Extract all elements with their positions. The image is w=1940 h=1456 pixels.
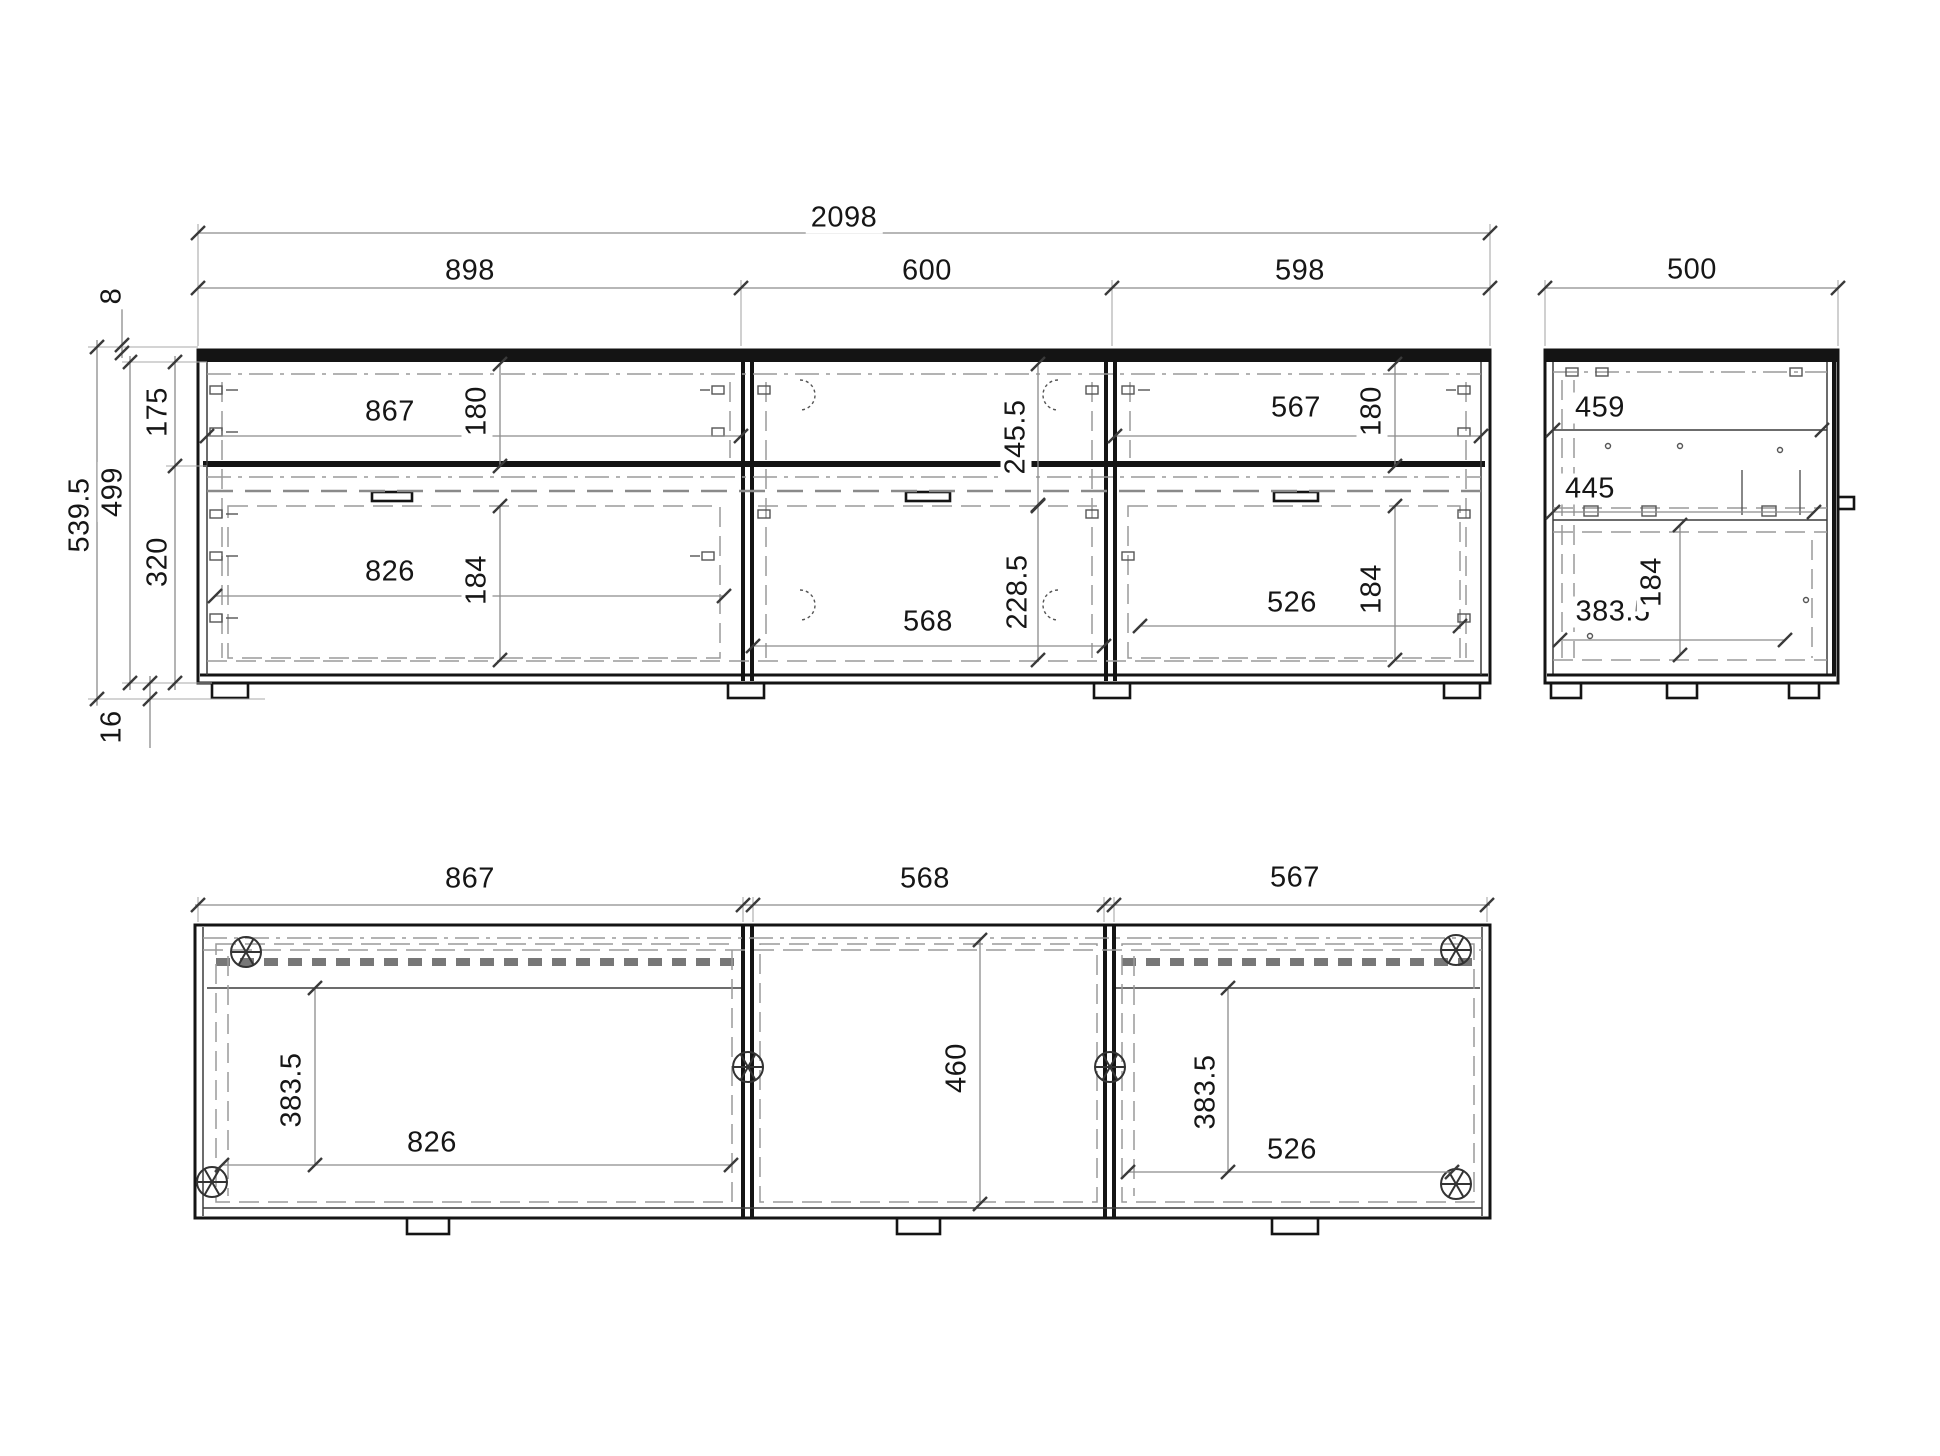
dim-front-mid-width: 600 [897, 256, 957, 287]
dim-plan-mid-width: 568 [895, 864, 955, 895]
dim-side-shelf-depth: 445 [1560, 474, 1620, 505]
dim-front-mid-door-width: 568 [898, 607, 958, 638]
dim-front-right-width: 598 [1270, 256, 1330, 287]
dim-front-left-door-height: 184 [462, 550, 493, 610]
dim-front-right-door-width: 526 [1262, 588, 1322, 619]
dim-front-left-drawer-height: 180 [462, 381, 493, 441]
dim-front-plinth-height: 16 [97, 705, 128, 748]
front-view-dimensions [88, 224, 1497, 748]
dim-plan-left-depth: 383.5 [277, 1047, 308, 1132]
dim-plan-left-door-width: 826 [402, 1128, 462, 1159]
dim-plan-right-door-width: 526 [1262, 1135, 1322, 1166]
dim-front-mid-opening-height: 245.5 [1001, 394, 1032, 479]
dim-front-left-width: 898 [440, 256, 500, 287]
handle-left-door [372, 492, 412, 501]
dim-plan-mid-depth: 460 [942, 1038, 973, 1098]
dim-side-drawer-height: 184 [1637, 552, 1668, 612]
dim-front-mid-door-height: 228.5 [1003, 549, 1034, 634]
dim-front-right-drawer-height: 180 [1357, 381, 1388, 441]
dim-side-depth: 500 [1662, 255, 1722, 286]
dim-front-right-door-height: 184 [1357, 559, 1388, 619]
dim-front-top-row-height: 175 [143, 382, 174, 442]
dim-front-top-gap: 8 [97, 283, 128, 310]
dim-plan-right-width: 567 [1265, 863, 1325, 894]
dim-plan-left-width: 867 [440, 864, 500, 895]
dim-plan-right-depth: 383.5 [1191, 1049, 1222, 1134]
dim-front-left-door-width: 826 [360, 557, 420, 588]
technical-drawing-sheet: 2098 898 600 598 8 539.5 499 175 320 16 … [0, 0, 1940, 1456]
dim-front-body-height: 499 [98, 462, 129, 522]
dim-front-total-width: 2098 [806, 203, 883, 234]
dim-front-bottom-row-height: 320 [143, 532, 174, 592]
handle-right-door [1274, 492, 1318, 501]
dim-front-right-drawer-width: 567 [1266, 393, 1326, 424]
dim-side-top-depth: 459 [1570, 393, 1630, 424]
dim-front-total-height: 539.5 [65, 472, 96, 557]
drawing-linework [0, 0, 1940, 1456]
plan-view-linework [195, 925, 1490, 1234]
dim-front-left-drawer-width: 867 [360, 397, 420, 428]
handle-middle-door [906, 492, 950, 501]
